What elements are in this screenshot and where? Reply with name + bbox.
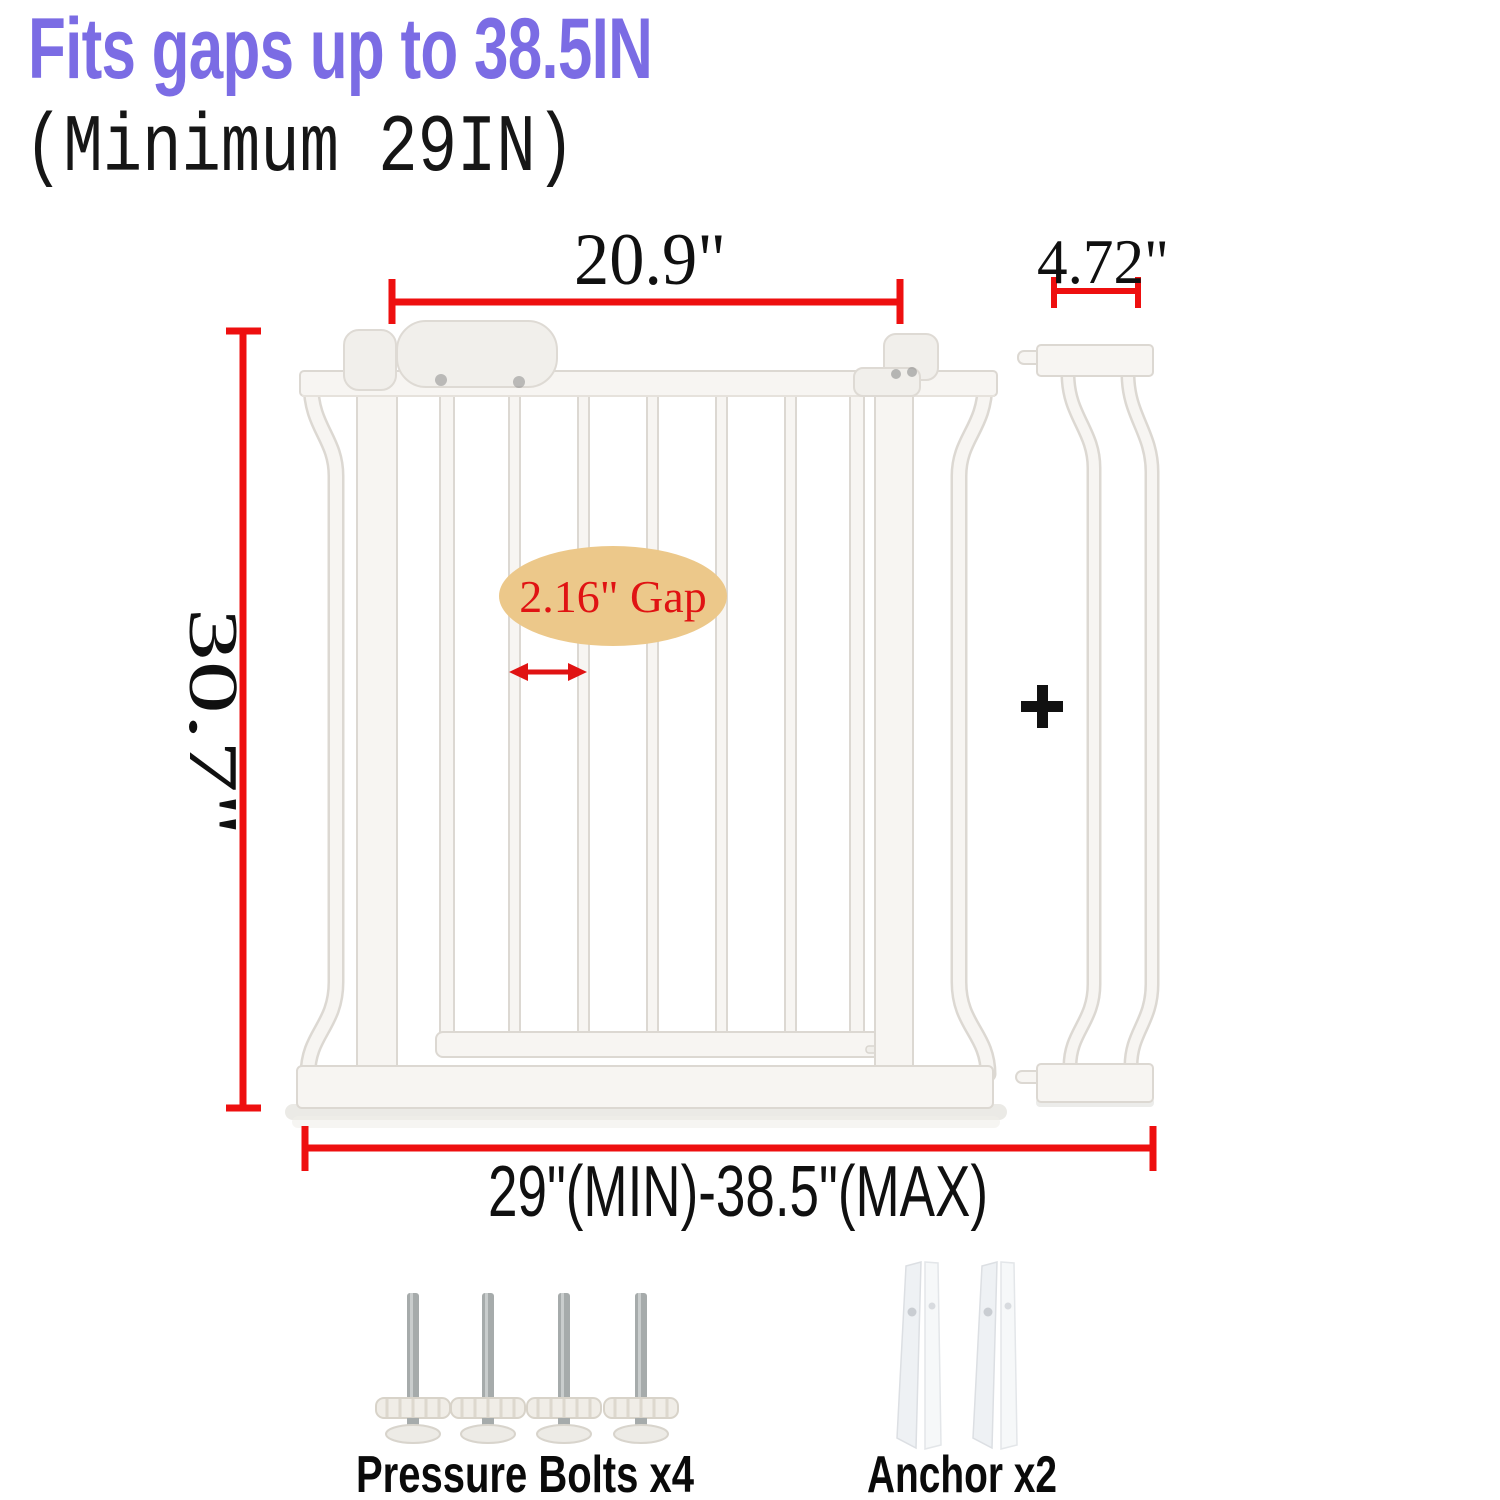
dimension-fit-range: 29"(MIN)-38.5"(MAX) [302, 1126, 1156, 1232]
fit-range-label: 29"(MIN)-38.5"(MAX) [488, 1152, 988, 1232]
wall-anchor [973, 1262, 1017, 1449]
extension-width-label: 4.72" [1037, 226, 1169, 297]
wall-anchors: Anchor x2 [867, 1262, 1057, 1500]
dimension-gate-height: 30.7" [174, 331, 261, 1108]
wall-anchor [897, 1262, 941, 1449]
extension-bottom-bracket [1016, 1064, 1153, 1102]
gate-bottom-rail [297, 1066, 993, 1108]
pressure-bolt [527, 1293, 601, 1443]
gate-width-label: 20.9" [574, 219, 726, 301]
gate-diagram: 20.9" 4.72" 30.7" 29"(MIN)-38.5"(MAX) 2.… [0, 0, 1500, 1500]
door-bottom-bar [436, 1032, 900, 1057]
product-infographic: Fits gaps up to 38.5IN (Minimum 29IN) [0, 0, 1500, 1500]
extension-illustration [1016, 345, 1154, 1107]
bar-gap-callout: 2.16" Gap [499, 546, 727, 681]
hinge-assembly [344, 321, 557, 390]
extension-top-bracket [1018, 345, 1153, 376]
anchor-label: Anchor x2 [867, 1446, 1057, 1500]
pressure-bolt [604, 1293, 678, 1443]
pressure-bolts-label: Pressure Bolts x4 [356, 1446, 694, 1500]
gate-bars [440, 393, 864, 1056]
pressure-bolts: Pressure Bolts x4 [356, 1293, 694, 1500]
pressure-bolt [451, 1293, 525, 1443]
dimension-extension-width: 4.72" [1037, 226, 1169, 308]
pressure-bolt [376, 1293, 450, 1443]
dimension-gate-width: 20.9" [389, 219, 903, 324]
bar-gap-label: 2.16" Gap [519, 571, 706, 622]
gate-illustration [285, 321, 1007, 1128]
plus-icon [1021, 685, 1063, 728]
extension-bars [1068, 374, 1152, 1066]
gate-height-label: 30.7" [174, 608, 251, 836]
